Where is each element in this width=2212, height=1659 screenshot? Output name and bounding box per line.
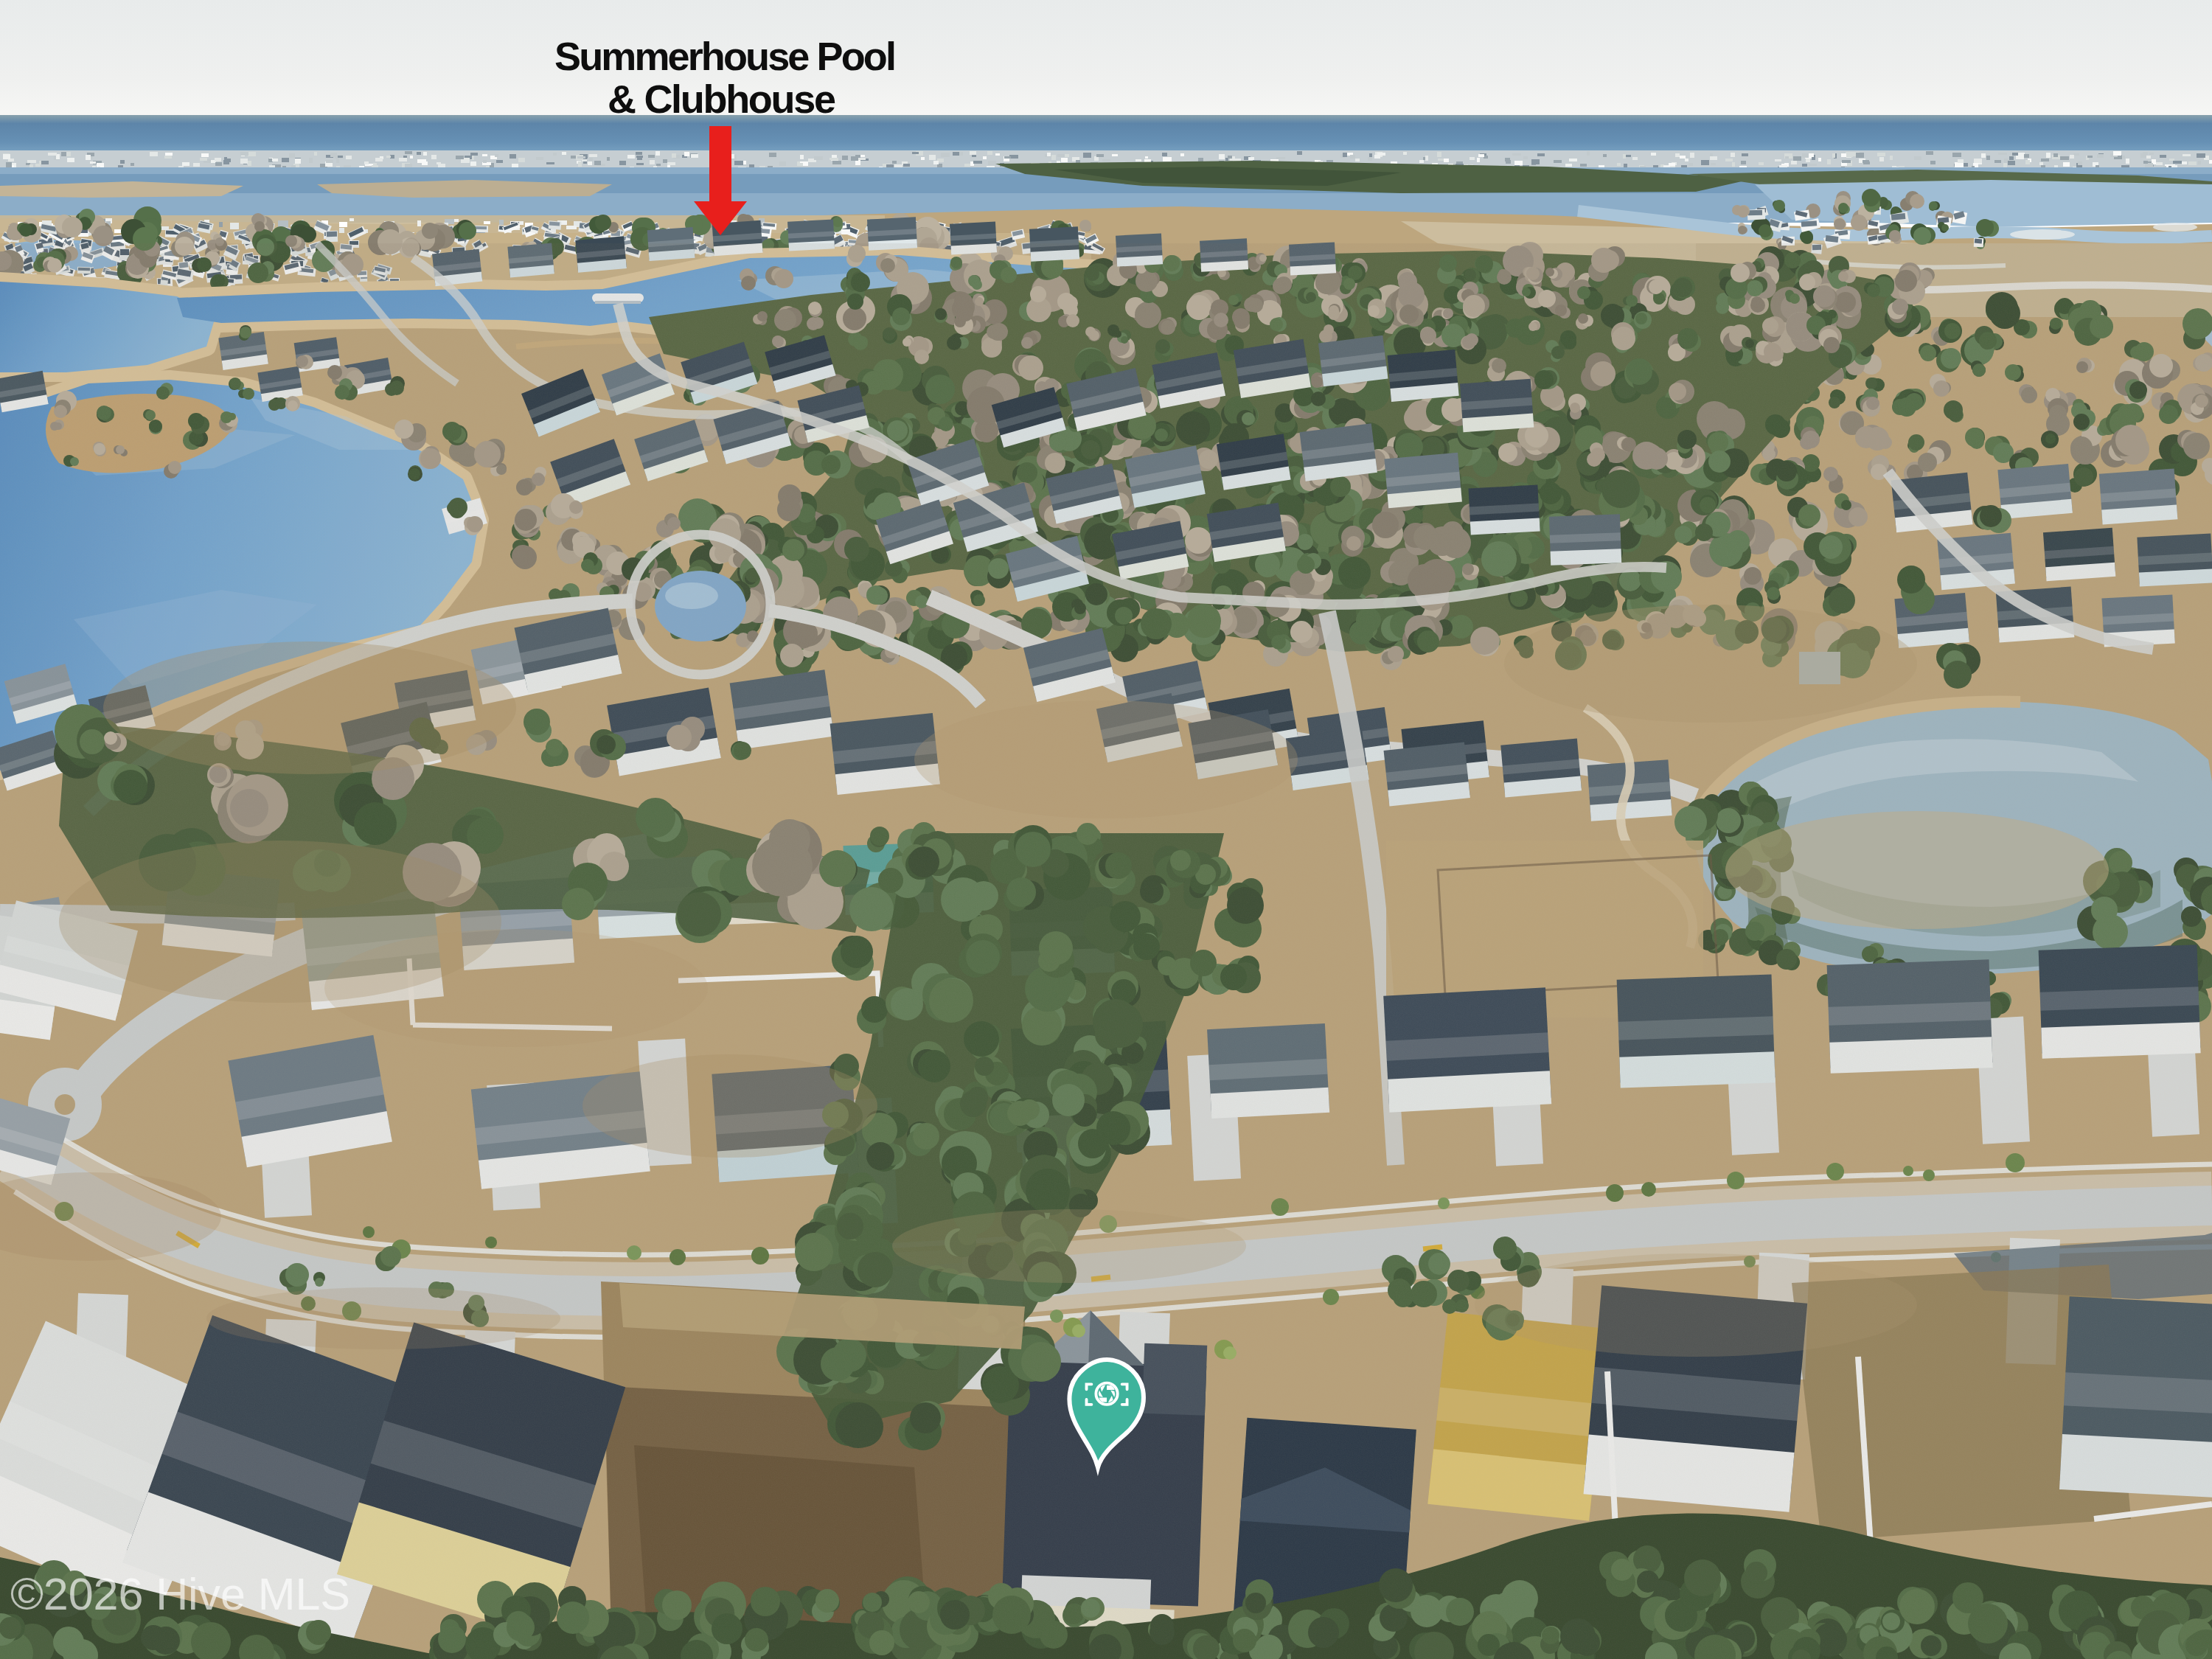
svg-text:& Clubhouse: & Clubhouse — [608, 77, 836, 121]
svg-text:Summerhouse Pool: Summerhouse Pool — [554, 34, 897, 78]
svg-text:©2026 Hive MLS: ©2026 Hive MLS — [10, 1569, 350, 1619]
